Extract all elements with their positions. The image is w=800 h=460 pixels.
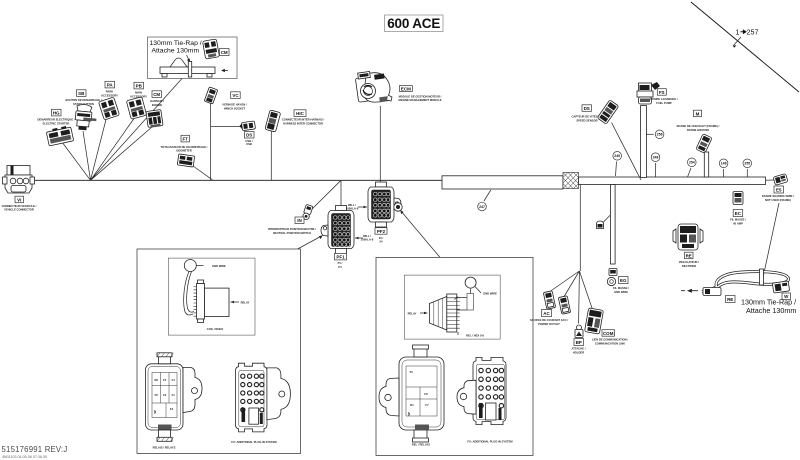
- svg-text:E5: E5: [776, 188, 782, 193]
- svg-text:RECTIFIER: RECTIFIER: [682, 264, 696, 268]
- svg-text:RELAY: RELAY: [408, 312, 417, 316]
- svg-text:VI: VI: [17, 197, 21, 202]
- svg-text:SP: SP: [153, 410, 157, 414]
- svg-text:M: M: [696, 111, 700, 116]
- svg-text:RELAIS / RELAYS: RELAIS / RELAYS: [153, 446, 176, 450]
- svg-text:F2: F2: [170, 407, 174, 411]
- svg-text:VC: VC: [232, 93, 239, 98]
- svg-text:REL / HEX 0-8: REL / HEX 0-8: [466, 334, 484, 338]
- svg-text:TOTALISATEUR DE KILOMETRAGE /: TOTALISATEUR DE KILOMETRAGE /: [161, 145, 208, 149]
- svg-text:T0: T0: [409, 370, 413, 374]
- svg-text:GND WIRE: GND WIRE: [483, 292, 497, 296]
- svg-text:REL / RELAYS: REL / RELAYS: [412, 443, 430, 447]
- svg-text:RELAY: RELAY: [241, 301, 250, 305]
- svg-text:F1: F1: [172, 393, 176, 397]
- svg-text:NOT USED (FRAME): NOT USED (FRAME): [765, 198, 791, 202]
- svg-text:248: 248: [653, 156, 659, 160]
- svg-text:FIL MASSE /: FIL MASSE /: [613, 286, 629, 290]
- svg-text:23 /: 23 /: [379, 236, 384, 240]
- svg-text:WILL /: WILL /: [348, 203, 356, 207]
- svg-text:FU: ADDITIONAL PLUG-IN SYSTEM: FU: ADDITIONAL PLUG-IN SYSTEM: [467, 440, 513, 444]
- svg-text:WINCH SOCKET: WINCH SOCKET: [224, 106, 245, 110]
- svg-text:VEHICLE CONNECTOR: VEHICLE CONNECTOR: [4, 207, 34, 211]
- svg-text:MODULE DE GESTION MOTEUR /: MODULE DE GESTION MOTEUR /: [399, 95, 442, 99]
- svg-text:MASSE DE CHEVALET (FRAME) /: MASSE DE CHEVALET (FRAME) /: [677, 124, 720, 128]
- svg-text:F6: F6: [155, 393, 159, 397]
- svg-text:PB: PB: [136, 83, 143, 88]
- svg-text:GND WIRE: GND WIRE: [212, 264, 226, 268]
- svg-text:R1: R1: [410, 403, 414, 407]
- svg-text:LIEN DE COMMUNICATION /: LIEN DE COMMUNICATION /: [592, 338, 628, 342]
- svg-text:BP: BP: [576, 340, 582, 345]
- svg-text:MAIN: MAIN: [135, 91, 142, 95]
- svg-text:100KLA-8: 100KLA-8: [346, 207, 359, 211]
- svg-text:FRAME SHARING WIRE /: FRAME SHARING WIRE /: [762, 194, 794, 198]
- svg-text:600 ACE: 600 ACE: [387, 16, 440, 31]
- svg-text:F7: F7: [425, 403, 429, 407]
- svg-text:24: 24: [380, 239, 383, 243]
- svg-text:RE: RE: [686, 253, 692, 258]
- svg-text:249: 249: [614, 154, 620, 158]
- svg-text:VERIN DE HAYON /: VERIN DE HAYON /: [222, 103, 247, 107]
- svg-text:EC: EC: [735, 211, 742, 216]
- svg-text:FT: FT: [182, 136, 188, 141]
- svg-text:COM: COM: [603, 331, 614, 336]
- svg-text:F8: F8: [424, 392, 428, 396]
- svg-text:ELECTRIC STARTER: ELECTRIC STARTER: [43, 121, 70, 125]
- svg-text:60 AMP: 60 AMP: [733, 221, 743, 225]
- svg-text:SOURCE DE COURANT ACC /: SOURCE DE COURANT ACC /: [530, 318, 568, 322]
- svg-text:ACCESSORY: ACCESSORY: [101, 93, 118, 97]
- svg-text:CM: CM: [221, 50, 228, 55]
- svg-text:F4: F4: [172, 378, 176, 382]
- svg-text:P4: P4: [338, 265, 342, 269]
- svg-text:FU: ADDITIONAL PLUG-IN SYSTEM: FU: ADDITIONAL PLUG-IN SYSTEM: [231, 440, 277, 444]
- svg-text:P1 /: P1 /: [338, 261, 343, 265]
- svg-text:HG: HG: [53, 110, 60, 115]
- svg-text:100KLA-8: 100KLA-8: [361, 238, 374, 242]
- svg-text:247: 247: [479, 205, 485, 209]
- svg-text:515176991 REV:J: 515176991 REV:J: [2, 445, 68, 454]
- svg-text:HARNAIS /: HARNAIS /: [150, 99, 164, 103]
- svg-text:130mm Tie-Rap /: 130mm Tie-Rap /: [150, 40, 202, 47]
- svg-text:255: 255: [744, 162, 750, 166]
- svg-text:GND WIRE: GND WIRE: [614, 290, 628, 294]
- svg-text:DEMARREUR ELECTRIQUE /: DEMARREUR ELECTRIQUE /: [37, 118, 74, 122]
- svg-text:FUEL PUMP: FUEL PUMP: [656, 101, 672, 105]
- svg-text:ENGINE: ENGINE: [152, 103, 163, 107]
- svg-text:CM: CM: [153, 92, 160, 97]
- svg-text:257: 257: [747, 28, 759, 37]
- svg-text:HOLDER: HOLDER: [573, 350, 584, 354]
- svg-text:PF1: PF1: [336, 255, 345, 260]
- svg-text:F3: F3: [163, 393, 167, 397]
- svg-text:PARK: PARK: [106, 90, 113, 94]
- svg-text:POMPE A ESSENCE /: POMPE A ESSENCE /: [650, 97, 678, 101]
- svg-text:256: 256: [657, 133, 663, 137]
- svg-text:R6: R6: [154, 378, 158, 382]
- svg-text:PA: PA: [107, 82, 114, 87]
- svg-text:1: 1: [736, 28, 740, 37]
- svg-text:ATTACHE /: ATTACHE /: [572, 347, 586, 351]
- svg-text:POWER OUTLET: POWER OUTLET: [538, 322, 560, 326]
- svg-text:SPEED SENSOR: SPEED SENSOR: [576, 118, 597, 122]
- svg-text:EG: EG: [620, 278, 627, 283]
- svg-text:DS: DS: [584, 106, 590, 111]
- svg-text:4M11103 04-05-06 07:36:39: 4M11103 04-05-06 07:36:39: [2, 455, 47, 459]
- svg-text:PF2: PF2: [377, 229, 386, 234]
- svg-text:REGULATEUR /: REGULATEUR /: [679, 260, 699, 264]
- svg-text:ENGINE MANAGEMENT MODULE: ENGINE MANAGEMENT MODULE: [399, 98, 442, 102]
- svg-text:DS: DS: [246, 133, 252, 138]
- svg-text:Attache 130mm: Attache 130mm: [152, 48, 200, 55]
- svg-text:RE: RE: [727, 297, 733, 302]
- svg-text:CONNECTEUR INTER-HARNAIS /: CONNECTEUR INTER-HARNAIS /: [282, 118, 325, 122]
- svg-text:AC: AC: [543, 311, 550, 316]
- svg-text:INTERRUPTEUR POSITION NEUTRE /: INTERRUPTEUR POSITION NEUTRE /: [268, 227, 316, 231]
- svg-text:254: 254: [689, 161, 695, 165]
- svg-text:BOUTON DE DEMARRAGE /: BOUTON DE DEMARRAGE /: [66, 98, 102, 102]
- svg-text:HARNESS INTER CONNECTOR: HARNESS INTER CONNECTOR: [283, 121, 323, 125]
- svg-text:ECM: ECM: [401, 86, 411, 91]
- svg-text:FRAME GROUND: FRAME GROUND: [687, 128, 709, 132]
- svg-text:SP: SP: [407, 412, 411, 416]
- svg-text:USB /: USB /: [245, 139, 252, 143]
- svg-text:ODOMETER: ODOMETER: [176, 149, 192, 153]
- svg-text:WILL /: WILL /: [363, 234, 371, 238]
- svg-text:148: 148: [721, 162, 727, 166]
- svg-text:IN: IN: [297, 218, 302, 223]
- svg-text:HIC: HIC: [296, 111, 305, 116]
- svg-text:COMMUNICATION LINK: COMMUNICATION LINK: [595, 341, 625, 345]
- svg-text:Attache 130mm: Attache 130mm: [746, 306, 796, 315]
- svg-text:FIL MASSE /: FIL MASSE /: [730, 218, 746, 222]
- svg-text:NEUTRAL POSITION SWITCH: NEUTRAL POSITION SWITCH: [273, 231, 311, 235]
- svg-text:F5: F5: [163, 378, 167, 382]
- svg-text:SB: SB: [78, 91, 85, 96]
- svg-text:COIL / RHEO: COIL / RHEO: [207, 327, 223, 331]
- svg-text:CONNECTEUR VEHICULE /: CONNECTEUR VEHICULE /: [2, 204, 37, 208]
- svg-text:USB: USB: [246, 142, 252, 146]
- svg-text:FS: FS: [659, 90, 665, 95]
